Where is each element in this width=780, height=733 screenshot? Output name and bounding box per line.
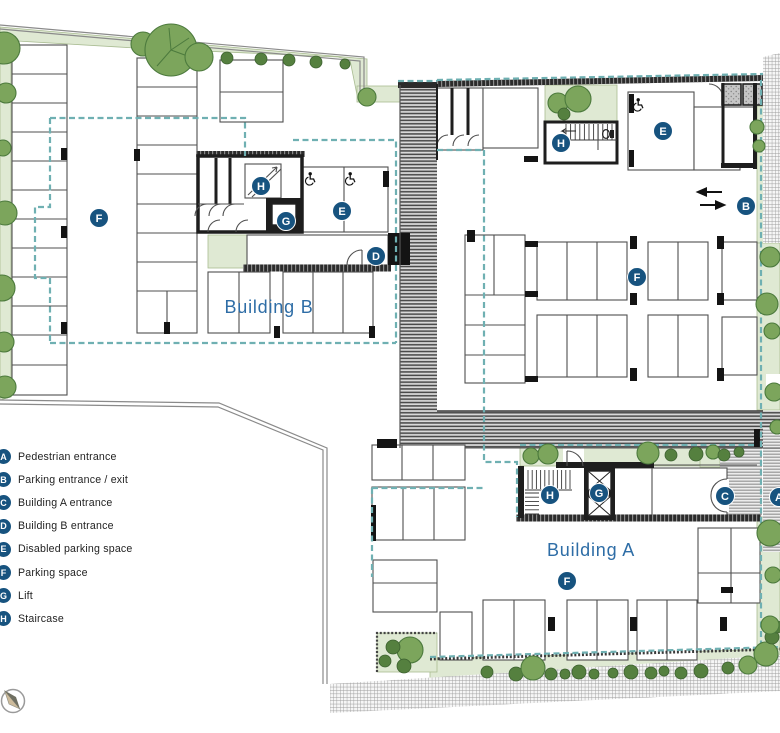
svg-text:F: F [564,576,571,588]
legend-item-building-a-entrance: C Building A entrance [0,491,190,514]
sidewalk-right [763,53,780,243]
ramp [400,85,437,448]
svg-text:E: E [338,206,345,218]
legend: A Pedestrian entrance B Parking entrance… [0,445,190,631]
legend-item-lift: G Lift [0,584,190,607]
plan-marker-h: H [252,177,271,196]
legend-label: Parking space [18,567,88,579]
plan-marker-g: G [277,212,296,231]
plan-marker-f: F [558,572,577,591]
legend-item-pedestrian-entrance: A Pedestrian entrance [0,445,190,468]
legend-marker-b: B [0,472,11,487]
legend-marker-d: D [0,519,11,534]
legend-label: Parking entrance / exit [18,474,128,486]
legend-item-disabled-parking-space: E Disabled parking space [0,538,190,561]
legend-item-staircase: H Staircase [0,607,190,630]
legend-label: Building A entrance [18,497,113,509]
building-label-building-b: Building B [224,297,313,317]
legend-label: Pedestrian entrance [18,451,117,463]
svg-text:H: H [546,490,554,502]
legend-item-parking-space: F Parking space [0,561,190,584]
legend-marker-e: E [0,542,11,557]
svg-text:D: D [372,251,380,263]
svg-text:F: F [96,213,103,225]
driveway [437,411,780,448]
plan-marker-f: F [628,268,647,287]
legend-marker-g: G [0,588,11,603]
svg-text:H: H [257,181,265,193]
svg-text:G: G [282,216,291,228]
plan-marker-e: E [333,202,352,221]
svg-text:G: G [595,488,604,500]
svg-text:F: F [634,272,641,284]
plan-marker-b: B [737,197,756,216]
plan-marker-h: H [541,486,560,505]
legend-marker-c: C [0,495,11,510]
svg-text:B: B [742,201,750,213]
plan-marker-c: C [716,487,735,506]
svg-text:H: H [557,138,565,150]
site-plan: Building BBuilding A FHGEDHEBFHGCAF A Pe… [0,0,780,733]
building-label-building-a: Building A [547,540,635,560]
legend-item-building-b-entrance: D Building B entrance [0,515,190,538]
plan-marker-d: D [367,247,386,266]
compass-north-icon [2,690,25,713]
legend-marker-a: A [0,449,11,464]
legend-item-parking-entrance-exit: B Parking entrance / exit [0,468,190,491]
legend-label: Lift [18,590,33,602]
legend-marker-h: H [0,611,11,626]
plan-marker-e: E [654,122,673,141]
legend-label: Staircase [18,613,64,625]
legend-marker-f: F [0,565,11,580]
plan-marker-f: F [90,209,109,228]
legend-label: Disabled parking space [18,543,133,555]
svg-text:E: E [659,126,666,138]
two-way-arrows-icon [698,189,724,209]
svg-text:A: A [775,492,780,504]
plan-marker-h: H [552,134,571,153]
plan-marker-g: G [590,484,609,503]
svg-text:C: C [721,491,729,503]
legend-label: Building B entrance [18,520,114,532]
